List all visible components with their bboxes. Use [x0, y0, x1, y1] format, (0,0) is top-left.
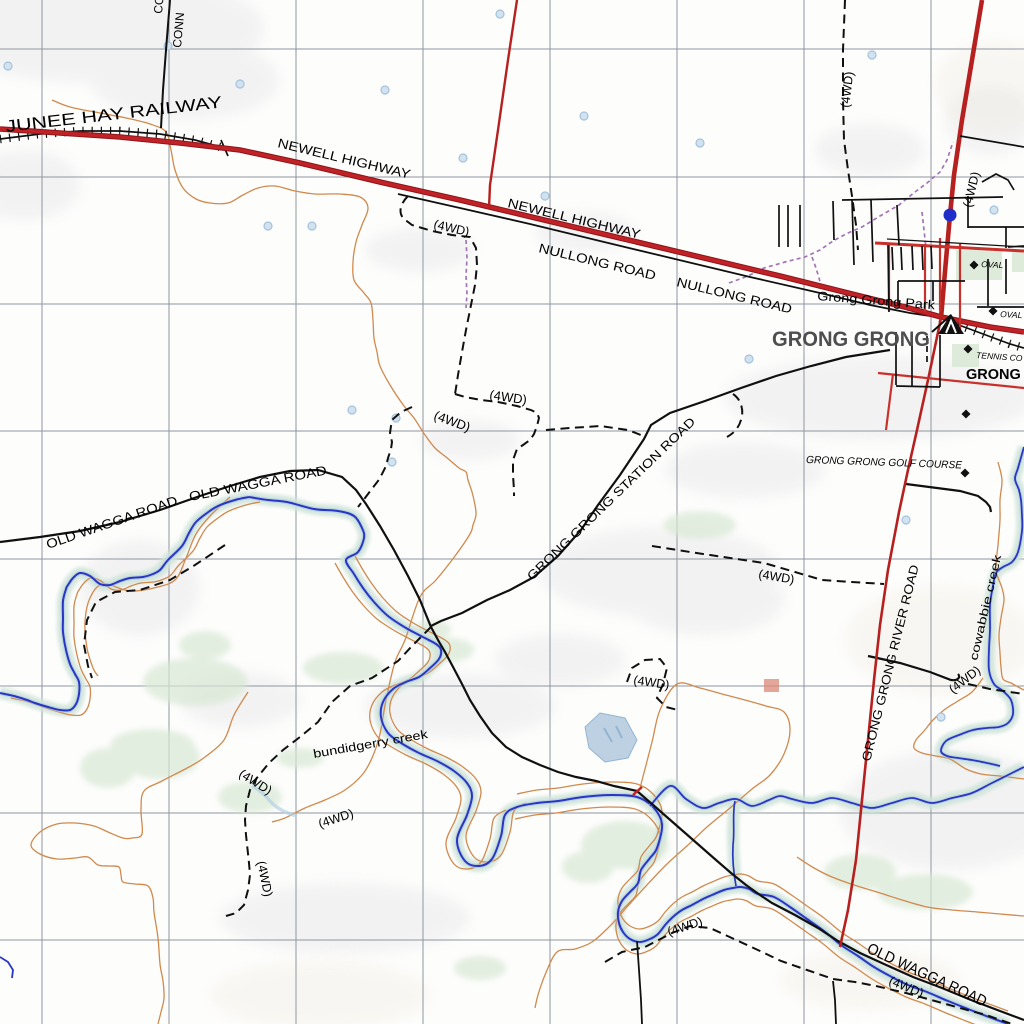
svg-text:GRONG GRONG: GRONG GRONG: [772, 327, 930, 351]
svg-text:OVAL: OVAL: [1000, 309, 1023, 320]
svg-text:GRONG G: GRONG G: [966, 367, 1024, 383]
svg-text:CO: CO: [151, 0, 167, 14]
svg-text:OVAL: OVAL: [981, 259, 1004, 270]
